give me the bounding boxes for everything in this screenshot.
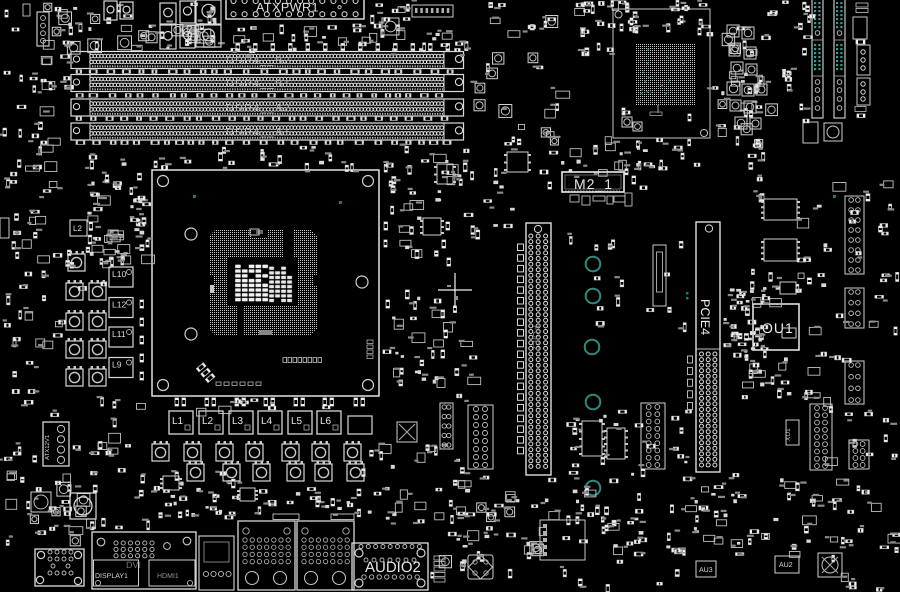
svg-text:HDMI1: HDMI1 [157,573,179,580]
svg-text:L5: L5 [291,416,303,427]
svg-text:L9: L9 [112,360,122,370]
svg-text:AU3: AU3 [699,567,713,574]
svg-text:AU2: AU2 [779,562,793,569]
svg-text:DDR4__B1: DDR4__B1 [226,78,291,90]
svg-text:DISPLAY1: DISPLAY1 [95,573,128,580]
svg-text:PCIE2: PCIE2 [531,325,541,351]
svg-text:ATX12V1: ATX12V1 [44,434,51,460]
svg-text:PCIE4: PCIE4 [698,299,712,335]
svg-text:DDR4__A1: DDR4__A1 [226,126,291,138]
svg-text:L1: L1 [172,416,184,427]
svg-text:L10: L10 [112,269,126,279]
svg-text:L2: L2 [73,224,82,233]
svg-text:L6: L6 [320,416,332,427]
svg-text:ATXPWR1: ATXPWR1 [256,1,319,15]
svg-text:L12: L12 [112,300,126,310]
svg-text:DDR4__A2: DDR4__A2 [226,102,291,114]
svg-text:DDR4__B2: DDR4__B2 [226,55,291,67]
svg-text:L2: L2 [202,416,214,427]
svg-text:L4: L4 [261,416,273,427]
svg-text:L11: L11 [112,329,126,339]
svg-text:M2_1: M2_1 [574,176,613,192]
svg-text:AUDIO2: AUDIO2 [365,559,421,576]
svg-text:XU1: XU1 [785,428,792,441]
svg-text:L3: L3 [232,416,244,427]
